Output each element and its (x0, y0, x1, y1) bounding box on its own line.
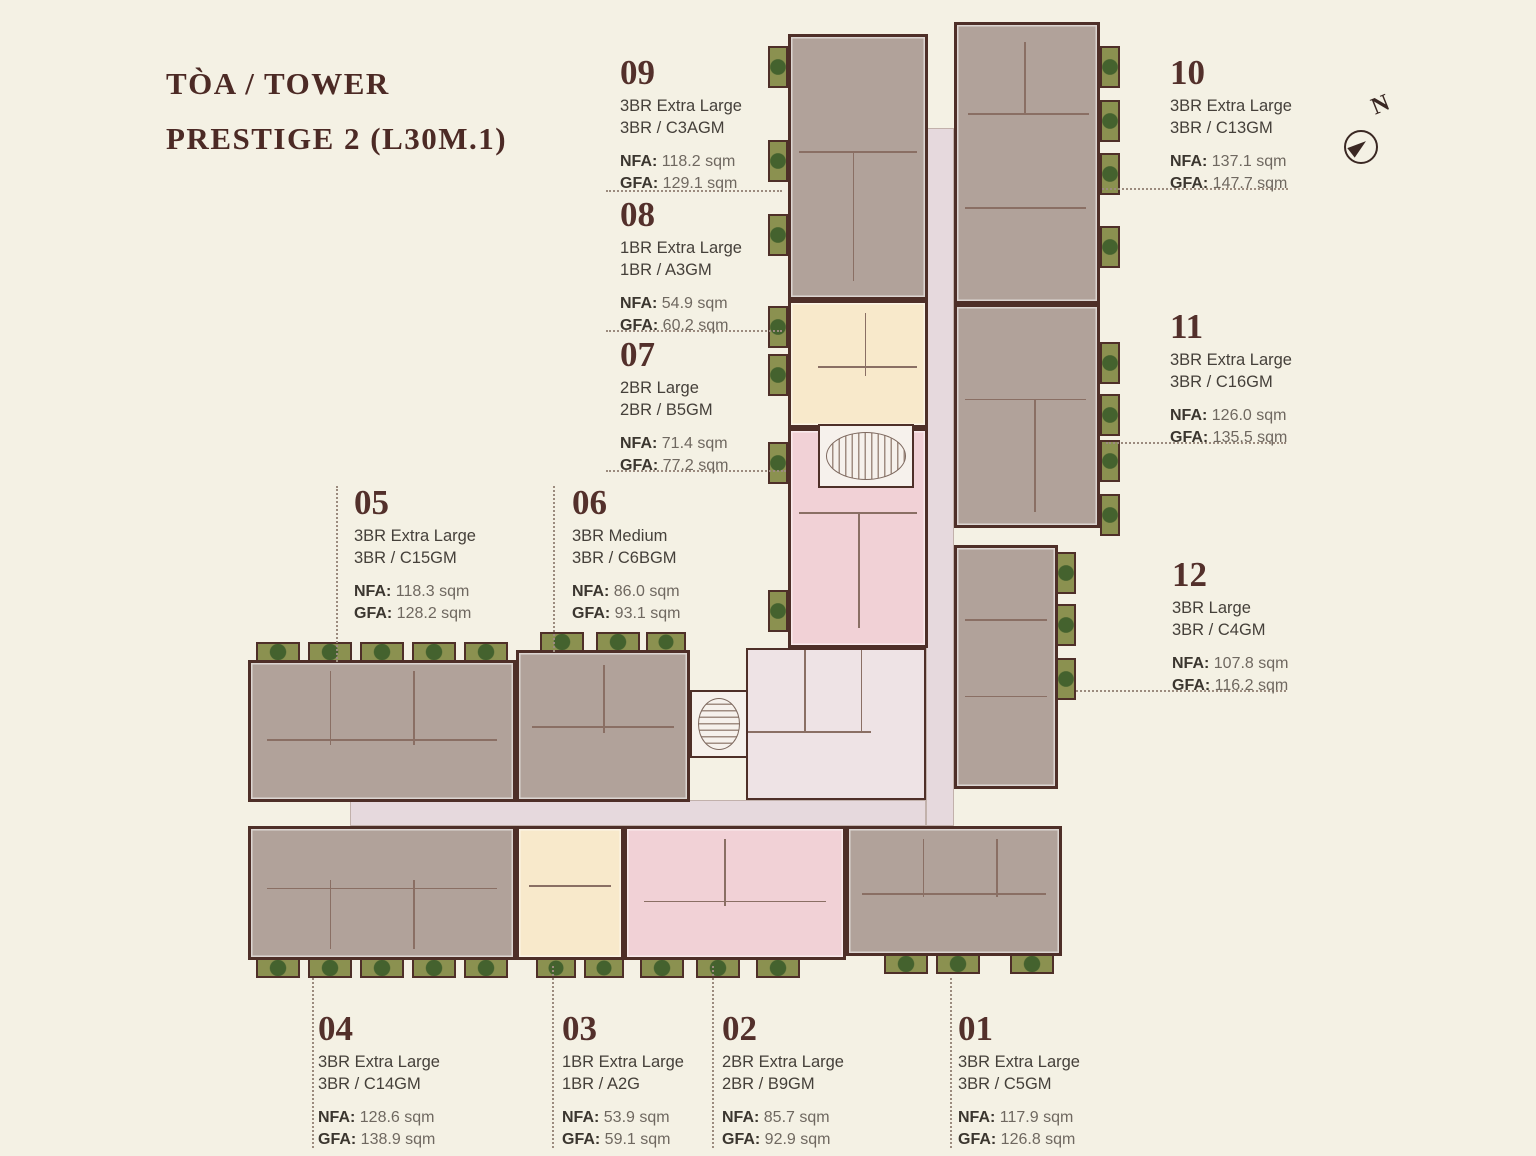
balcony-planter (1100, 440, 1120, 482)
nfa-key: NFA: (620, 435, 657, 452)
unit-area-11 (954, 304, 1100, 528)
unit-area-05 (248, 660, 516, 802)
nfa-value: 128.6 sqm (360, 1109, 435, 1126)
unit-number: 11 (1170, 308, 1355, 346)
gfa-key: GFA: (1172, 677, 1210, 694)
balcony-planter (464, 642, 508, 662)
unit-area-02 (624, 826, 846, 960)
gfa-key: GFA: (562, 1131, 600, 1148)
nfa-value: 137.1 sqm (1212, 153, 1287, 170)
unit-type: 3BR Extra Large (318, 1051, 503, 1073)
staircase-tower-core (818, 424, 914, 488)
unit-nfa: NFA: 85.7 sqm (722, 1107, 907, 1129)
room-wall (804, 650, 806, 731)
nfa-key: NFA: (562, 1109, 599, 1126)
unit-nfa: NFA: 107.8 sqm (1172, 653, 1357, 675)
room-wall (532, 726, 673, 728)
balcony-planter (1010, 954, 1054, 974)
gfa-key: GFA: (620, 175, 658, 192)
unit-type: 1BR Extra Large (620, 237, 805, 259)
nfa-key: NFA: (1172, 655, 1209, 672)
unit-code: 3BR / C6BGM (572, 547, 757, 569)
balcony-planter (884, 954, 928, 974)
unit-code: 1BR / A3GM (620, 259, 805, 281)
gfa-value: 116.2 sqm (1215, 677, 1289, 694)
nfa-value: 118.3 sqm (396, 583, 470, 600)
gfa-key: GFA: (354, 605, 392, 622)
unit-label-02: 02 2BR Extra Large 2BR / B9GM NFA: 85.7 … (722, 1010, 907, 1151)
gfa-key: GFA: (620, 457, 658, 474)
unit-label-07: 07 2BR Large 2BR / B5GM NFA: 71.4 sqm GF… (620, 336, 805, 477)
unit-area-08 (788, 300, 928, 428)
unit-code: 1BR / A2G (562, 1073, 747, 1095)
room-wall (799, 151, 917, 153)
unit-code: 3BR / C13GM (1170, 117, 1355, 139)
balcony-planter (1100, 226, 1120, 268)
room-wall (923, 839, 925, 897)
balcony-planter (540, 632, 584, 652)
room-wall (1024, 42, 1026, 114)
balcony-planter (1100, 100, 1120, 142)
unit-number: 05 (354, 484, 539, 522)
unit-label-11: 11 3BR Extra Large 3BR / C16GM NFA: 126.… (1170, 308, 1355, 449)
unit-nfa: NFA: 54.9 sqm (620, 293, 805, 315)
nfa-key: NFA: (354, 583, 391, 600)
unit-label-06: 06 3BR Medium 3BR / C6BGM NFA: 86.0 sqm … (572, 484, 757, 625)
balcony-planter (360, 958, 404, 978)
unit-label-05: 05 3BR Extra Large 3BR / C15GM NFA: 118.… (354, 484, 539, 625)
unit-area-01 (846, 826, 1062, 956)
balcony-planter (256, 642, 300, 662)
room-wall (413, 880, 415, 949)
unit-gfa: GFA: 116.2 sqm (1172, 675, 1357, 697)
room-wall (644, 901, 825, 903)
corridor-vertical (926, 128, 954, 826)
gfa-key: GFA: (958, 1131, 996, 1148)
balcony-planter (1100, 394, 1120, 436)
unit-code: 2BR / B5GM (620, 399, 805, 421)
balcony-planter (756, 958, 800, 978)
balcony-planter (640, 958, 684, 978)
room-wall (861, 650, 863, 731)
balcony-planter (1056, 604, 1076, 646)
gfa-key: GFA: (722, 1131, 760, 1148)
balcony-planter (308, 642, 352, 662)
balcony-planter (768, 590, 788, 632)
unit-nfa: NFA: 126.0 sqm (1170, 405, 1355, 427)
gfa-value: 77.2 sqm (663, 457, 729, 474)
unit-nfa: NFA: 128.6 sqm (318, 1107, 503, 1129)
balcony-planter (412, 958, 456, 978)
stair-flight (826, 432, 906, 480)
leader-line-03 (552, 966, 554, 1148)
unit-code: 3BR / C4GM (1172, 619, 1357, 641)
nfa-key: NFA: (318, 1109, 355, 1126)
balcony-planter (646, 632, 686, 652)
unit-gfa: GFA: 129.1 sqm (620, 173, 805, 195)
room-wall (330, 671, 332, 744)
unit-code: 3BR / C16GM (1170, 371, 1355, 393)
room-wall (603, 665, 605, 734)
nfa-key: NFA: (722, 1109, 759, 1126)
unit-code: 2BR / B9GM (722, 1073, 907, 1095)
gfa-value: 126.8 sqm (1001, 1131, 1076, 1148)
unit-nfa: NFA: 71.4 sqm (620, 433, 805, 455)
unit-nfa: NFA: 53.9 sqm (562, 1107, 747, 1129)
room-wall (853, 151, 855, 281)
unit-label-09: 09 3BR Extra Large 3BR / C3AGM NFA: 118.… (620, 54, 805, 195)
unit-gfa: GFA: 93.1 sqm (572, 603, 757, 625)
unit-label-03: 03 1BR Extra Large 1BR / A2G NFA: 53.9 s… (562, 1010, 747, 1151)
room-wall (965, 399, 1085, 401)
gfa-value: 138.9 sqm (361, 1131, 436, 1148)
gfa-key: GFA: (1170, 175, 1208, 192)
balcony-planter (1100, 494, 1120, 536)
nfa-key: NFA: (620, 153, 657, 170)
balcony-planter (584, 958, 624, 978)
balcony-planter (936, 954, 980, 974)
balcony-planter (1100, 46, 1120, 88)
floor-plan-page: TÒA / TOWER PRESTIGE 2 (L30M.1) N (0, 0, 1536, 1156)
gfa-value: 129.1 sqm (663, 175, 738, 192)
stair-flight (698, 698, 740, 750)
unit-nfa: NFA: 137.1 sqm (1170, 151, 1355, 173)
gfa-value: 59.1 sqm (605, 1131, 671, 1148)
nfa-key: NFA: (958, 1109, 995, 1126)
balcony-planter (1056, 552, 1076, 594)
unit-nfa: NFA: 86.0 sqm (572, 581, 757, 603)
unit-gfa: GFA: 138.9 sqm (318, 1129, 503, 1151)
balcony-planter (256, 958, 300, 978)
unit-label-10: 10 3BR Extra Large 3BR / C13GM NFA: 137.… (1170, 54, 1355, 195)
balcony-planter (1100, 342, 1120, 384)
gfa-value: 92.9 sqm (765, 1131, 831, 1148)
gfa-value: 147.7 sqm (1213, 175, 1288, 192)
unit-gfa: GFA: 59.1 sqm (562, 1129, 747, 1151)
nfa-value: 126.0 sqm (1212, 407, 1287, 424)
unit-area-06 (516, 650, 690, 802)
nfa-key: NFA: (620, 295, 657, 312)
nfa-value: 118.2 sqm (662, 153, 736, 170)
unit-number: 01 (958, 1010, 1143, 1048)
room-wall (818, 366, 917, 368)
unit-number: 06 (572, 484, 757, 522)
unit-gfa: GFA: 77.2 sqm (620, 455, 805, 477)
nfa-key: NFA: (1170, 407, 1207, 424)
gfa-value: 60.2 sqm (663, 317, 729, 334)
balcony-planter (596, 632, 640, 652)
balcony-planter (412, 642, 456, 662)
gfa-key: GFA: (318, 1131, 356, 1148)
room-wall (862, 893, 1047, 895)
unit-type: 3BR Large (1172, 597, 1357, 619)
unit-gfa: GFA: 147.7 sqm (1170, 173, 1355, 195)
unit-gfa: GFA: 128.2 sqm (354, 603, 539, 625)
nfa-value: 54.9 sqm (662, 295, 728, 312)
unit-label-08: 08 1BR Extra Large 1BR / A3GM NFA: 54.9 … (620, 196, 805, 337)
nfa-value: 85.7 sqm (764, 1109, 830, 1126)
room-wall (330, 880, 332, 949)
gfa-key: GFA: (1170, 429, 1208, 446)
nfa-value: 53.9 sqm (604, 1109, 670, 1126)
balcony-planter (696, 958, 740, 978)
unit-type: 2BR Large (620, 377, 805, 399)
room-wall (267, 739, 498, 741)
staircase-wing-core (690, 690, 748, 758)
unit-number: 03 (562, 1010, 747, 1048)
room-wall (965, 619, 1047, 621)
room-wall (529, 885, 611, 887)
balcony-planter (308, 958, 352, 978)
gfa-value: 135.5 sqm (1213, 429, 1288, 446)
unit-area-09 (788, 34, 928, 300)
nfa-value: 86.0 sqm (614, 583, 680, 600)
unit-type: 1BR Extra Large (562, 1051, 747, 1073)
leader-line-01 (950, 978, 952, 1148)
room-wall (996, 839, 998, 897)
unit-area-12 (954, 545, 1058, 789)
room-wall (724, 839, 726, 906)
unit-area-03 (516, 826, 624, 960)
leader-line-04 (312, 978, 314, 1148)
lobby-core (746, 648, 926, 800)
unit-area-04 (248, 826, 516, 960)
gfa-key: GFA: (620, 317, 658, 334)
unit-number: 12 (1172, 556, 1357, 594)
unit-type: 2BR Extra Large (722, 1051, 907, 1073)
room-wall (965, 207, 1085, 209)
balcony-planter (360, 642, 404, 662)
unit-type: 3BR Extra Large (1170, 349, 1355, 371)
gfa-key: GFA: (572, 605, 610, 622)
nfa-key: NFA: (1170, 153, 1207, 170)
gfa-value: 93.1 sqm (615, 605, 681, 622)
balcony-planter (1056, 658, 1076, 700)
unit-gfa: GFA: 135.5 sqm (1170, 427, 1355, 449)
unit-code: 3BR / C14GM (318, 1073, 503, 1095)
room-wall (413, 671, 415, 744)
unit-type: 3BR Medium (572, 525, 757, 547)
balcony-planter (536, 958, 576, 978)
unit-nfa: NFA: 118.3 sqm (354, 581, 539, 603)
nfa-value: 107.8 sqm (1214, 655, 1289, 672)
leader-line-05 (336, 486, 338, 662)
unit-type: 3BR Extra Large (354, 525, 539, 547)
nfa-key: NFA: (572, 583, 609, 600)
room-wall (1034, 399, 1036, 512)
unit-number: 02 (722, 1010, 907, 1048)
room-wall (858, 512, 860, 628)
unit-number: 09 (620, 54, 805, 92)
nfa-value: 117.9 sqm (1000, 1109, 1074, 1126)
nfa-value: 71.4 sqm (662, 435, 728, 452)
unit-code: 3BR / C3AGM (620, 117, 805, 139)
unit-label-01: 01 3BR Extra Large 3BR / C5GM NFA: 117.9… (958, 1010, 1143, 1151)
unit-number: 04 (318, 1010, 503, 1048)
unit-nfa: NFA: 118.2 sqm (620, 151, 805, 173)
unit-type: 3BR Extra Large (620, 95, 805, 117)
unit-number: 07 (620, 336, 805, 374)
room-wall (965, 696, 1047, 698)
room-wall (748, 731, 871, 733)
unit-code: 3BR / C15GM (354, 547, 539, 569)
unit-label-12: 12 3BR Large 3BR / C4GM NFA: 107.8 sqm G… (1172, 556, 1357, 697)
unit-number: 10 (1170, 54, 1355, 92)
unit-type: 3BR Extra Large (958, 1051, 1143, 1073)
leader-line-06 (553, 486, 555, 652)
unit-nfa: NFA: 117.9 sqm (958, 1107, 1143, 1129)
balcony-planter (464, 958, 508, 978)
unit-label-04: 04 3BR Extra Large 3BR / C14GM NFA: 128.… (318, 1010, 503, 1151)
unit-area-10 (954, 22, 1100, 304)
unit-gfa: GFA: 60.2 sqm (620, 315, 805, 337)
corridor-horizontal (350, 800, 926, 826)
gfa-value: 128.2 sqm (397, 605, 472, 622)
unit-code: 3BR / C5GM (958, 1073, 1143, 1095)
room-wall (267, 888, 498, 890)
unit-type: 3BR Extra Large (1170, 95, 1355, 117)
unit-gfa: GFA: 92.9 sqm (722, 1129, 907, 1151)
unit-number: 08 (620, 196, 805, 234)
room-wall (968, 113, 1088, 115)
unit-gfa: GFA: 126.8 sqm (958, 1129, 1143, 1151)
